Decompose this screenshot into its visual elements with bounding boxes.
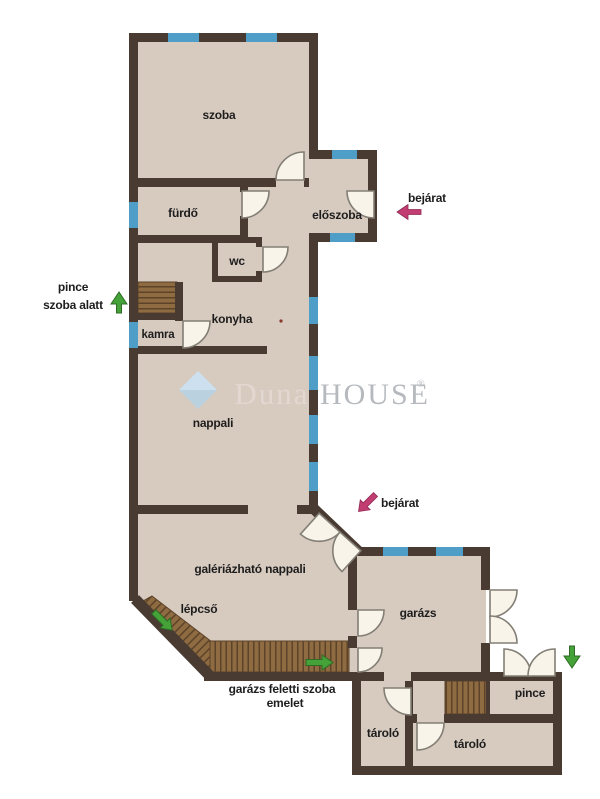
konyha-dot-mark — [279, 319, 282, 322]
room-label-kamra: kamra — [142, 329, 176, 341]
room-label-szoba: szoba — [202, 108, 236, 122]
window-eloszoba-top — [332, 150, 357, 159]
annotation-garazs-feletti-line1: garázs feletti szoba — [229, 682, 336, 696]
annotation-pince-line1: pince — [58, 280, 89, 294]
pink-down-left-arrow-icon — [354, 490, 381, 517]
window-nappali-2 — [309, 415, 318, 444]
watermark-prefix: Duna — [234, 376, 309, 411]
room-label-eloszoba: előszoba — [312, 208, 362, 222]
window-szoba-2 — [246, 33, 277, 42]
room-label-tarolo-left: tároló — [367, 726, 399, 740]
stairs-horizontal-gallery — [210, 641, 349, 672]
annotation-pince-line2: szoba alatt — [43, 298, 103, 312]
watermark-registered-icon: ® — [417, 379, 425, 390]
window-garazs-1 — [383, 547, 408, 556]
room-label-lepcso: lépcső — [181, 602, 218, 616]
room-label-furdo: fürdő — [168, 206, 198, 220]
pink-left-arrow-icon — [397, 205, 421, 220]
room-label-galeria-nappali: galériázható nappali — [194, 562, 305, 576]
window-nappali-3 — [309, 462, 318, 491]
room-label-garazs: garázs — [400, 606, 437, 620]
room-label-wc: wc — [228, 254, 245, 268]
annotation-bejarat-upper: bejárat — [408, 191, 446, 205]
door-pince-entrance-double — [504, 649, 555, 676]
stairs-basement — [445, 681, 487, 714]
room-label-pince: pince — [515, 686, 546, 700]
window-furdo — [129, 202, 138, 228]
window-garazs-2 — [436, 547, 463, 556]
window-kamra — [129, 322, 138, 348]
window-nappali-1 — [309, 356, 318, 390]
green-up-arrow-icon — [111, 292, 127, 313]
room-label-konyha: konyha — [212, 312, 253, 326]
room-label-nappali: nappali — [193, 416, 234, 430]
annotation-garazs-feletti-line2: emelet — [267, 696, 304, 710]
annotation-bejarat-lower: bejárat — [381, 496, 419, 510]
green-down-arrow-icon — [564, 646, 580, 668]
window-eloszoba-bottom — [330, 233, 355, 242]
floor-plan-page: Duna HOUSE ® — [0, 0, 600, 799]
watermark-name: HOUSE — [320, 378, 430, 411]
door-garazs-right-double — [490, 590, 517, 643]
room-label-tarolo-right: tároló — [454, 737, 486, 751]
stairs-cellar-under-room — [138, 282, 177, 313]
floor-plan-svg: Duna HOUSE ® — [0, 0, 600, 799]
window-konyha — [309, 297, 318, 324]
window-szoba-1 — [168, 33, 199, 42]
